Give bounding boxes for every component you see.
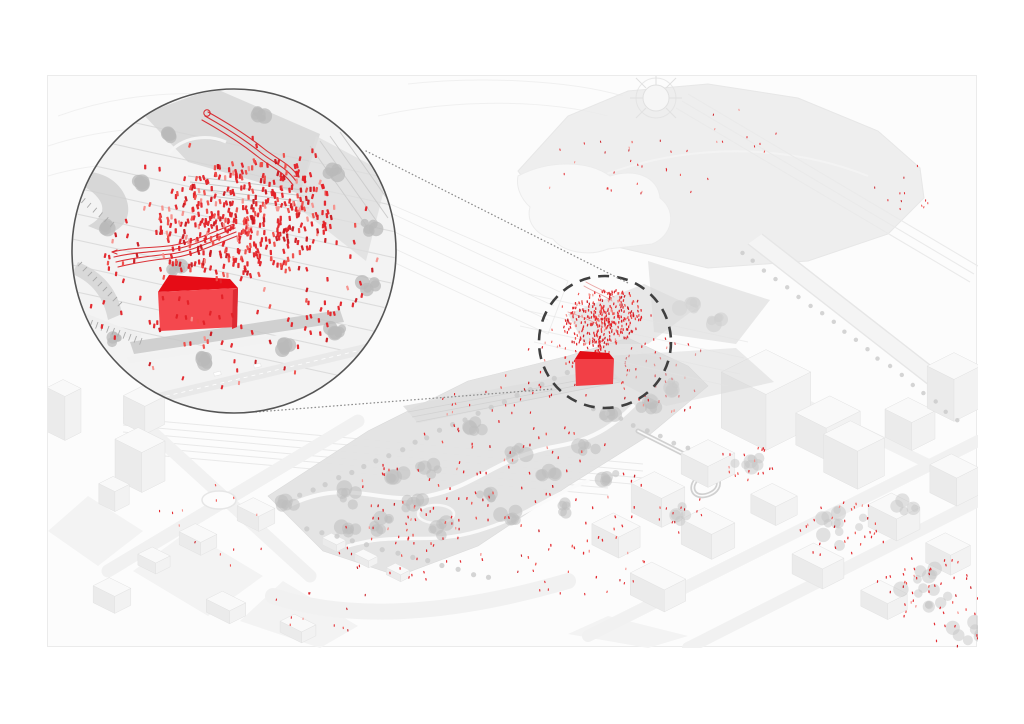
diagram-page	[0, 0, 1024, 724]
focus-red-pavilion	[575, 351, 614, 386]
diagram-canvas	[47, 75, 977, 647]
magnifier-inset	[54, 88, 414, 413]
site-axonometric-drawing	[48, 76, 978, 648]
roundabout	[202, 491, 236, 509]
